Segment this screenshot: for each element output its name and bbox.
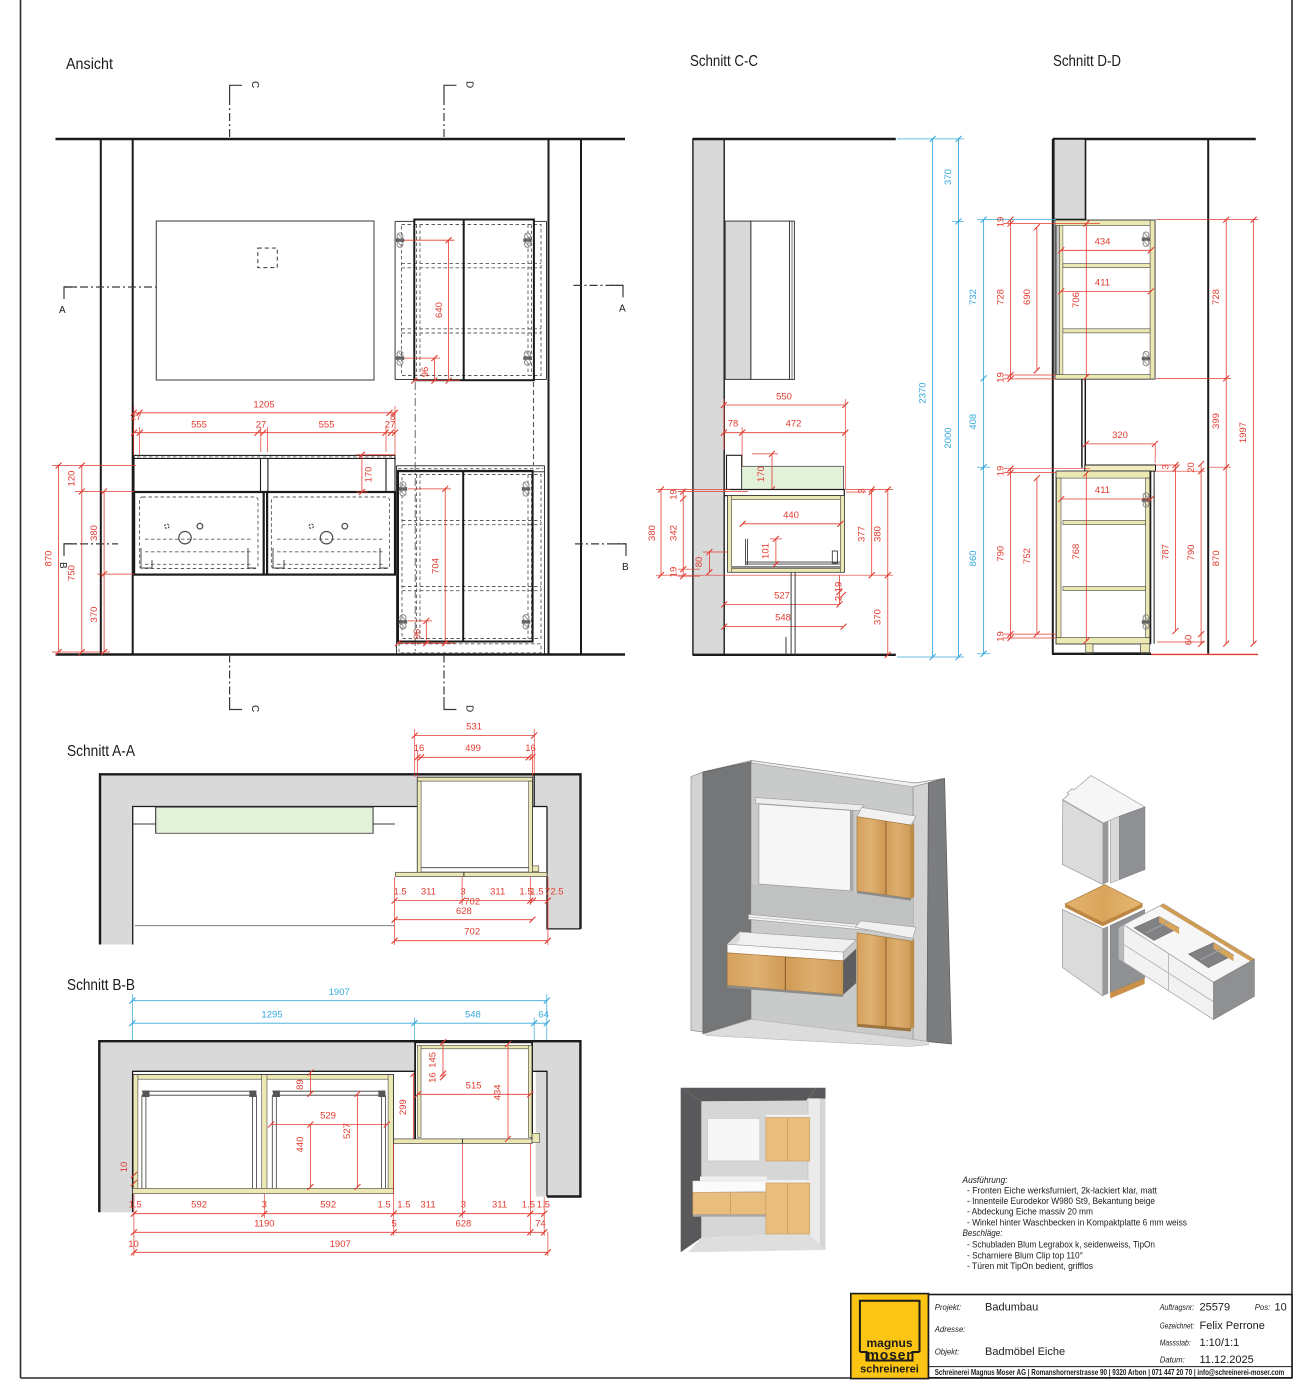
svg-text:19: 19: [669, 567, 680, 578]
svg-text:19: 19: [834, 582, 845, 593]
svg-text:311: 311: [492, 1200, 507, 1211]
svg-text:399: 399: [1211, 413, 1222, 429]
svg-text:702: 702: [464, 927, 480, 938]
svg-text:548: 548: [775, 613, 791, 624]
svg-text:768: 768: [1071, 544, 1082, 560]
svg-text:19: 19: [996, 217, 1007, 228]
svg-text:320: 320: [1112, 430, 1128, 441]
svg-text:628: 628: [456, 906, 472, 917]
svg-text:411: 411: [1095, 278, 1110, 289]
svg-text:548: 548: [465, 1010, 481, 1021]
svg-text:790: 790: [1186, 545, 1197, 561]
svg-text:19: 19: [996, 631, 1007, 642]
svg-text:moser: moser: [866, 1346, 912, 1362]
svg-text:11.12.2025: 11.12.2025: [1200, 1354, 1254, 1366]
svg-text:19: 19: [996, 466, 1007, 477]
svg-text:870: 870: [44, 551, 55, 567]
svg-text:19: 19: [996, 372, 1007, 383]
svg-text:- Türen mit TipOn bedient, gri: - Türen mit TipOn bedient, grifflos: [967, 1261, 1093, 1272]
svg-text:411: 411: [1095, 485, 1110, 496]
svg-text:370: 370: [943, 169, 954, 185]
svg-text:342: 342: [669, 525, 680, 541]
svg-text:690: 690: [1022, 289, 1033, 305]
svg-text:Schnitt D-D: Schnitt D-D: [1053, 53, 1121, 70]
svg-text:A: A: [619, 304, 626, 315]
svg-text:19: 19: [669, 489, 680, 500]
svg-text:728: 728: [996, 289, 1007, 305]
svg-text:60: 60: [1184, 635, 1195, 646]
svg-text:472: 472: [786, 419, 802, 430]
svg-text:16: 16: [428, 1072, 439, 1083]
svg-text:311: 311: [421, 1200, 436, 1211]
svg-text:440: 440: [783, 510, 799, 521]
svg-text:Schnitt C-C: Schnitt C-C: [690, 53, 758, 70]
svg-text:10: 10: [128, 1239, 139, 1250]
svg-text:Projekt:: Projekt:: [935, 1303, 961, 1312]
svg-text:B: B: [622, 562, 629, 573]
svg-text:370: 370: [89, 607, 100, 623]
svg-text:64: 64: [538, 1010, 549, 1021]
svg-text:Adresse:: Adresse:: [934, 1325, 966, 1334]
svg-text:- Innenteile Eurodekor W980 St: - Innenteile Eurodekor W980 St9, Bekantu…: [967, 1196, 1155, 1207]
svg-text:527: 527: [342, 1123, 353, 1139]
svg-text:- Fronten Eiche werksfurniert,: - Fronten Eiche werksfurniert, 2k-lackie…: [967, 1186, 1157, 1197]
svg-text:380: 380: [873, 526, 884, 542]
svg-text:640: 640: [434, 302, 445, 318]
svg-text:299: 299: [398, 1099, 409, 1115]
svg-text:16: 16: [414, 743, 425, 754]
svg-text:Badumbau: Badumbau: [985, 1302, 1038, 1314]
svg-text:1.5: 1.5: [393, 887, 406, 898]
svg-text:1.5: 1.5: [537, 1200, 550, 1211]
svg-text:1:10/1:1: 1:10/1:1: [1200, 1337, 1240, 1349]
svg-text:A: A: [59, 305, 66, 316]
svg-text:- Abdeckung Eiche massiv 20 mm: - Abdeckung Eiche massiv 20 mm: [967, 1207, 1093, 1218]
svg-text:96: 96: [412, 629, 423, 640]
svg-text:370: 370: [873, 609, 884, 625]
svg-text:408: 408: [968, 414, 979, 430]
svg-text:1.5: 1.5: [377, 1200, 390, 1211]
svg-text:Badmöbel Eiche: Badmöbel Eiche: [985, 1346, 1065, 1358]
svg-text:628: 628: [455, 1218, 471, 1229]
svg-text:2370: 2370: [918, 382, 929, 403]
svg-text:706: 706: [1071, 292, 1082, 308]
svg-text:80: 80: [694, 557, 705, 568]
svg-text:1.5: 1.5: [129, 1200, 142, 1211]
svg-text:Datum:: Datum:: [1160, 1356, 1185, 1365]
svg-text:311: 311: [421, 887, 436, 898]
svg-text:Schreinerei Magnus Moser AG |: Schreinerei Magnus Moser AG | Romanshorn…: [935, 1367, 1284, 1377]
svg-text:870: 870: [1211, 550, 1222, 566]
svg-text:2000: 2000: [943, 427, 954, 448]
svg-text:- Scharniere Blum Clip top 110: - Scharniere Blum Clip top 110°: [967, 1251, 1083, 1262]
svg-text:D: D: [463, 705, 474, 712]
svg-text:790: 790: [996, 546, 1007, 562]
svg-text:C: C: [249, 705, 260, 712]
svg-text:Massstab:: Massstab:: [1160, 1339, 1191, 1348]
svg-text:1.5: 1.5: [530, 887, 543, 898]
svg-text:728: 728: [1211, 289, 1222, 305]
svg-text:380: 380: [647, 525, 658, 541]
svg-text:170: 170: [364, 467, 375, 483]
svg-text:25579: 25579: [1200, 1302, 1231, 1314]
svg-text:10: 10: [119, 1162, 130, 1173]
svg-text:499: 499: [465, 743, 481, 754]
svg-text:27: 27: [131, 412, 142, 423]
svg-text:3: 3: [857, 488, 868, 493]
svg-text:527: 527: [774, 591, 790, 602]
svg-text:Auftragsnr:: Auftragsnr:: [1159, 1303, 1194, 1312]
svg-text:380: 380: [89, 525, 100, 541]
svg-text:Schnitt B-B: Schnitt B-B: [67, 977, 135, 994]
svg-text:1997: 1997: [1238, 422, 1249, 443]
svg-text:145: 145: [428, 1052, 439, 1068]
svg-text:750: 750: [67, 565, 78, 581]
svg-text:Felix Perrone: Felix Perrone: [1200, 1320, 1265, 1332]
svg-text:120: 120: [67, 471, 78, 487]
svg-text:Pos:: Pos:: [1255, 1303, 1271, 1312]
svg-text:440: 440: [295, 1137, 306, 1153]
svg-text:1205: 1205: [253, 400, 274, 411]
svg-text:1.5: 1.5: [397, 1200, 410, 1211]
svg-text:787: 787: [1160, 544, 1171, 560]
svg-text:529: 529: [320, 1111, 336, 1122]
svg-text:78: 78: [728, 419, 739, 430]
svg-text:555: 555: [319, 419, 335, 430]
svg-text:1907: 1907: [329, 987, 350, 998]
svg-text:- Winkel hinter Waschbecken in: - Winkel hinter Waschbecken in Kompaktpl…: [967, 1217, 1187, 1228]
svg-text:3: 3: [461, 1200, 466, 1211]
svg-text:555: 555: [191, 419, 207, 430]
svg-text:- Schubladen Blum Legrabox k,: - Schubladen Blum Legrabox k, seidenweis…: [967, 1240, 1155, 1251]
svg-text:732: 732: [968, 289, 979, 305]
svg-text:377: 377: [857, 526, 868, 542]
svg-text:Gezeichnet:: Gezeichnet:: [1160, 1322, 1195, 1331]
svg-text:860: 860: [968, 550, 979, 566]
svg-text:Schnitt A-A: Schnitt A-A: [67, 743, 135, 760]
svg-text:10: 10: [1275, 1302, 1287, 1314]
svg-text:101: 101: [761, 543, 772, 559]
svg-text:752: 752: [1022, 548, 1033, 564]
svg-text:Objekt:: Objekt:: [935, 1348, 960, 1357]
svg-text:Beschläge:: Beschläge:: [963, 1228, 1003, 1239]
svg-text:170: 170: [756, 466, 767, 482]
svg-text:531: 531: [466, 722, 482, 733]
svg-text:1.5: 1.5: [522, 1200, 535, 1211]
svg-text:1907: 1907: [330, 1239, 351, 1250]
svg-text:D: D: [463, 81, 474, 88]
svg-text:434: 434: [493, 1084, 504, 1100]
svg-text:592: 592: [320, 1200, 336, 1211]
svg-text:schreinerei: schreinerei: [860, 1364, 919, 1376]
svg-text:1295: 1295: [261, 1010, 282, 1021]
svg-text:434: 434: [1095, 237, 1111, 248]
svg-text:515: 515: [466, 1081, 482, 1092]
svg-text:5: 5: [392, 1218, 397, 1229]
svg-text:96: 96: [420, 367, 431, 378]
svg-text:550: 550: [776, 392, 792, 403]
svg-text:89: 89: [295, 1079, 306, 1090]
svg-text:C: C: [249, 81, 260, 88]
svg-text:Ansicht: Ansicht: [66, 56, 113, 73]
svg-text:1190: 1190: [254, 1218, 274, 1229]
svg-text:704: 704: [431, 558, 442, 574]
svg-text:311: 311: [490, 887, 505, 898]
svg-text:592: 592: [191, 1200, 207, 1211]
svg-text:2: 2: [834, 596, 845, 601]
